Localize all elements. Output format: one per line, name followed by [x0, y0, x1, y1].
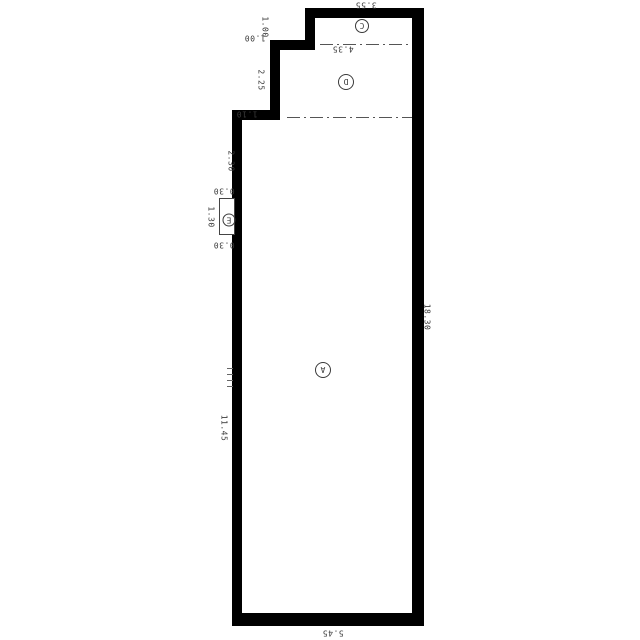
floor-plan-drawing: 3.55 1.00 1.00 2.25 1.10 2.30 0.30 1.30 … — [0, 0, 640, 640]
dim-bottom-width: 5.45 — [322, 629, 343, 638]
wall-tick — [227, 374, 233, 375]
area-letter-c: C — [360, 22, 365, 31]
dim-right-side: 18.30 — [423, 304, 432, 331]
area-letter-e: E — [227, 216, 232, 225]
area-label-e: E — [223, 214, 236, 227]
dim-niche-length: 1.30 — [207, 206, 216, 227]
wall-step2-vertical — [270, 40, 280, 120]
dim-step1-width: 1.00 — [244, 34, 265, 43]
dim-top-width: 3.55 — [355, 1, 376, 10]
dim-left-lower: 11.45 — [220, 415, 229, 442]
wall-bottom — [232, 613, 424, 626]
wall-tick — [227, 368, 233, 369]
area-label-a: A — [315, 362, 331, 378]
area-letter-d: D — [344, 78, 349, 87]
wall-step1-vertical — [305, 8, 315, 50]
dim-middle-width: 4.35 — [332, 45, 353, 54]
dim-niche-gap-bottom: 0.30 — [213, 241, 234, 250]
wall-tick — [227, 380, 233, 381]
dim-step2-width: 1.10 — [236, 110, 257, 119]
wall-top — [305, 8, 424, 18]
dim-step2-height: 2.25 — [257, 69, 266, 90]
dim-left-upper: 2.30 — [227, 150, 236, 171]
area-label-c: C — [355, 19, 369, 33]
area-letter-a: A — [321, 366, 326, 375]
centerline-lower — [287, 117, 412, 118]
dim-niche-gap-top: 0.30 — [213, 187, 234, 196]
area-label-d: D — [338, 74, 354, 90]
wall-tick — [227, 386, 233, 387]
